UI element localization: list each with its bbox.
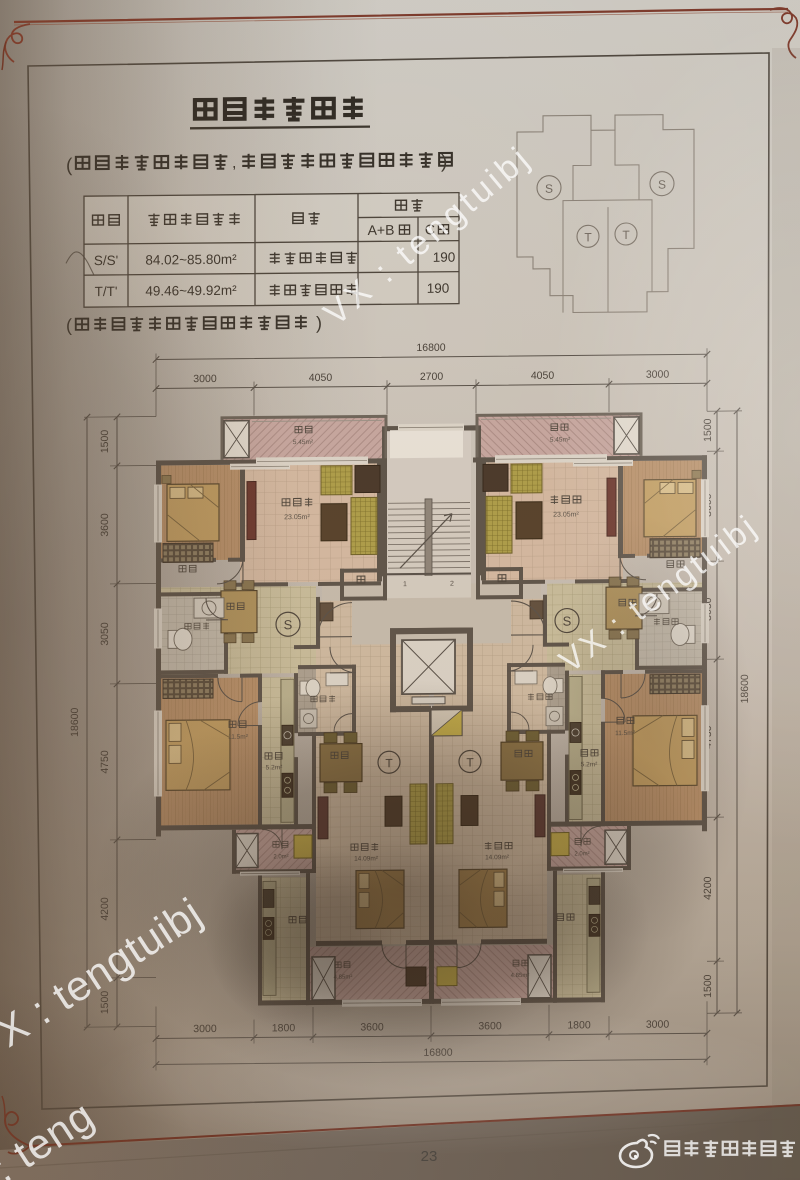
svg-text:23: 23 bbox=[421, 1148, 438, 1165]
